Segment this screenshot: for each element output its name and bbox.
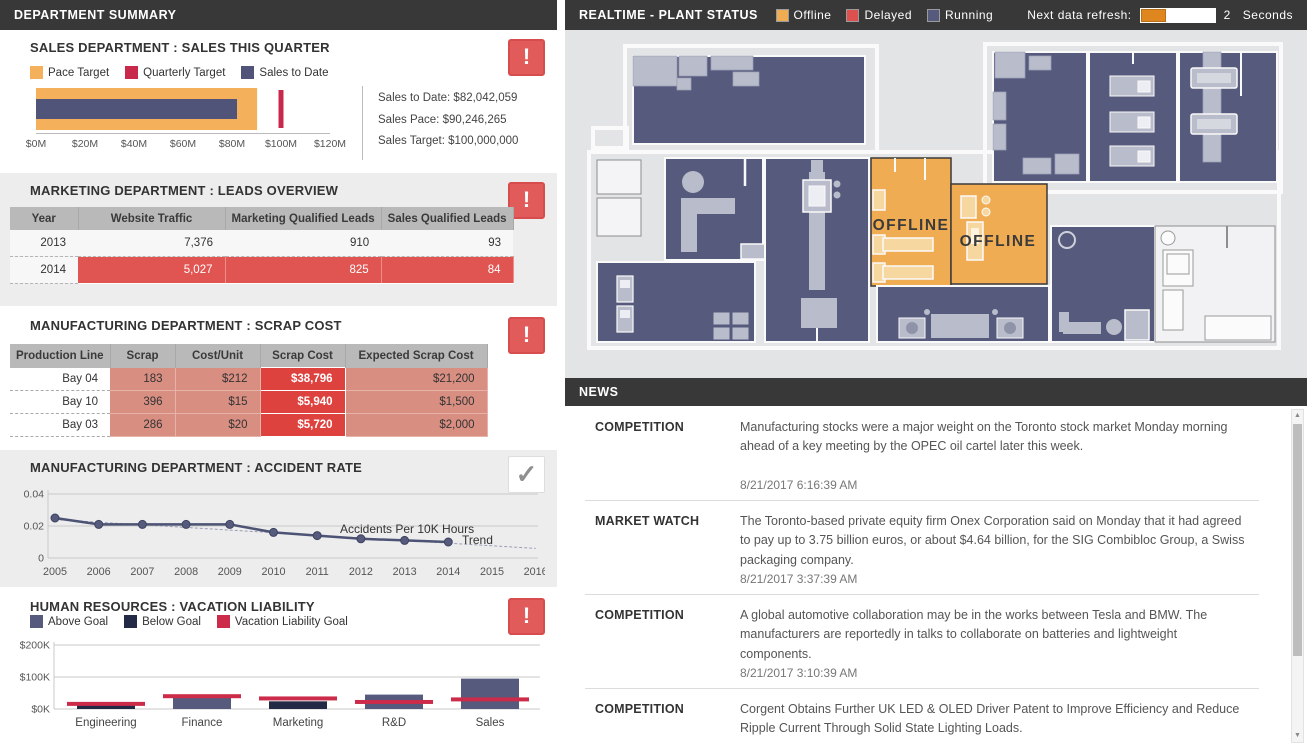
svg-text:Sales: Sales [476, 717, 505, 729]
sales-legend: Pace TargetQuarterly TargetSales to Date [30, 66, 328, 79]
sales-stats: Sales to Date: $82,042,059Sales Pace: $9… [378, 88, 518, 153]
legend-chip [30, 615, 43, 628]
refresh-progress-fill [1141, 9, 1166, 22]
column-header: Year [10, 207, 78, 230]
svg-text:2005: 2005 [43, 566, 67, 578]
news-text: The Toronto-based private equity firm On… [740, 512, 1245, 570]
scrap-cell: 396 [110, 391, 175, 414]
quarterly-target-marker [279, 90, 284, 128]
department-summary-header: DEPARTMENT SUMMARY [0, 0, 557, 30]
cost-unit-cell: $15 [175, 391, 260, 414]
department-summary-title: DEPARTMENT SUMMARY [14, 8, 176, 22]
news-text: Manufacturing stocks were a major weight… [740, 418, 1245, 457]
accident-section-title: MANUFACTURING DEPARTMENT : ACCIDENT RATE [30, 460, 362, 475]
cost-unit-cell: $212 [175, 368, 260, 391]
alert-icon[interactable]: ! [508, 182, 545, 219]
liability-bar [269, 701, 327, 709]
legend-item: Vacation Liability Goal [217, 615, 348, 628]
table-row: Bay 10396$15$5,940$1,500 [10, 391, 487, 414]
value-cell: 910 [225, 230, 381, 257]
news-item: COMPETITIONCorgent Obtains Further UK LE… [565, 688, 1307, 746]
value-cell: 93 [381, 230, 513, 257]
cost-unit-cell: $20 [175, 414, 260, 437]
scrap-cost-cell: $5,720 [260, 414, 345, 437]
svg-text:2010: 2010 [261, 566, 285, 578]
legend-label: Delayed [864, 0, 912, 30]
svg-text:$100M: $100M [265, 138, 297, 150]
scrap-cost-cell: $38,796 [260, 368, 345, 391]
legend-item: Pace Target [30, 66, 109, 79]
legend-chip [241, 66, 254, 79]
news-list: COMPETITIONManufacturing stocks were a m… [565, 406, 1307, 746]
table-row: Bay 04183$212$38,796$21,200 [10, 368, 487, 391]
legend-item: Sales to Date [241, 66, 328, 79]
scrollbar-up-arrow[interactable]: ▲ [1292, 410, 1303, 422]
svg-text:2011: 2011 [306, 566, 329, 578]
column-header: Sales Qualified Leads [381, 207, 513, 230]
svg-text:R&D: R&D [382, 717, 406, 729]
svg-text:$40M: $40M [121, 138, 147, 150]
expected-cost-cell: $21,200 [345, 368, 487, 391]
column-header: Marketing Qualified Leads [225, 207, 381, 230]
svg-text:$20M: $20M [72, 138, 98, 150]
realtime-panel: REALTIME - PLANT STATUS OfflineDelayedRu… [565, 0, 1307, 746]
sales-stat-line: Sales Pace: $90,246,265 [378, 110, 518, 132]
sales-to-date-bar [36, 99, 237, 119]
table-header-row: Production LineScrapCost/UnitScrap CostE… [10, 344, 487, 368]
divider [362, 86, 363, 160]
svg-text:Engineering: Engineering [75, 717, 136, 729]
svg-text:$60M: $60M [170, 138, 196, 150]
scrap-cost-table: Production LineScrapCost/UnitScrap CostE… [10, 344, 488, 437]
news-header: NEWS [565, 378, 1307, 406]
column-header: Cost/Unit [175, 344, 260, 368]
scrap-cell: 183 [110, 368, 175, 391]
alert-icon[interactable]: ! [508, 317, 545, 354]
legend-label: Below Goal [142, 616, 201, 628]
news-text: A global automotive collaboration may be… [740, 606, 1245, 664]
legend-chip [776, 9, 789, 22]
legend-label: Above Goal [48, 616, 108, 628]
goal-line [355, 700, 433, 704]
svg-text:$100K: $100K [20, 672, 50, 684]
svg-text:$0K: $0K [31, 704, 50, 716]
news-category: COMPETITION [595, 420, 735, 434]
svg-text:2007: 2007 [130, 566, 154, 578]
legend-item: Running [927, 0, 993, 30]
production-line-cell: Bay 04 [10, 368, 110, 391]
data-point [138, 520, 146, 528]
news-text: Corgent Obtains Further UK LED & OLED Dr… [740, 700, 1245, 739]
sales-section: SALES DEPARTMENT : SALES THIS QUARTER ! … [0, 30, 557, 172]
legend-item: Above Goal [30, 615, 108, 628]
room-running-5 [597, 262, 755, 342]
svg-text:$120M: $120M [314, 138, 346, 150]
legend-item: Delayed [846, 0, 912, 30]
plant-status-legend: OfflineDelayedRunning [776, 0, 994, 30]
data-point [182, 520, 190, 528]
scrollbar-thumb[interactable] [1293, 424, 1302, 656]
table-row: 20145,02782584 [10, 257, 513, 284]
svg-text:$200K: $200K [20, 640, 50, 652]
room-running-machine [765, 158, 869, 342]
svg-text:Accidents Per 10K Hours: Accidents Per 10K Hours [340, 522, 474, 536]
news-item: MARKET WATCHThe Toronto-based private eq… [565, 500, 1307, 594]
goal-line [67, 702, 145, 706]
scrap-section-title: MANUFACTURING DEPARTMENT : SCRAP COST [30, 318, 342, 333]
data-point [313, 532, 321, 540]
sales-stat-line: Sales to Date: $82,042,059 [378, 88, 518, 110]
data-point [226, 520, 234, 528]
news-scrollbar[interactable]: ▲ ▼ [1291, 409, 1304, 743]
data-point [95, 520, 103, 528]
column-header: Expected Scrap Cost [345, 344, 487, 368]
room-running-7 [1051, 226, 1155, 342]
news-timestamp: 8/21/2017 3:10:39 AM [740, 666, 857, 680]
liability-bar [173, 698, 231, 709]
news-category: COMPETITION [595, 608, 735, 622]
svg-text:2006: 2006 [87, 566, 111, 578]
floorplan-svg: OFFLINE OFFLINE [565, 30, 1307, 378]
svg-text:$0M: $0M [26, 138, 46, 150]
room-running-6 [877, 286, 1049, 342]
scrap-section: MANUFACTURING DEPARTMENT : SCRAP COST ! … [0, 308, 557, 448]
corridor-units [597, 160, 641, 236]
legend-item: Offline [776, 0, 832, 30]
legend-item: Below Goal [124, 615, 201, 628]
room-running-4 [1179, 52, 1277, 182]
room-idle-white [1155, 226, 1275, 342]
news-item: COMPETITIONA global automotive collabora… [565, 594, 1307, 688]
column-header: Website Traffic [78, 207, 225, 230]
news-timestamp: 8/21/2017 6:16:39 AM [740, 478, 857, 492]
column-header: Scrap [110, 344, 175, 368]
table-header-row: YearWebsite TrafficMarketing Qualified L… [10, 207, 513, 230]
expected-cost-cell: $2,000 [345, 414, 487, 437]
vacation-liability-chart: $0K$100K$200KEngineeringFinanceMarketing… [10, 635, 545, 739]
data-point [401, 536, 409, 544]
production-line-cell: Bay 03 [10, 414, 110, 437]
sales-stat-line: Sales Target: $100,000,000 [378, 131, 518, 153]
room-offline-2: OFFLINE [951, 184, 1047, 284]
refresh-seconds-unit: Seconds [1243, 0, 1293, 30]
svg-text:0.04: 0.04 [24, 489, 45, 501]
plant-status-title: REALTIME - PLANT STATUS [579, 0, 758, 30]
value-cell: 5,027 [78, 257, 225, 284]
table-row: 20137,37691093 [10, 230, 513, 257]
legend-label: Running [945, 0, 993, 30]
hr-legend: Above GoalBelow GoalVacation Liability G… [30, 615, 348, 628]
column-header: Production Line [10, 344, 110, 368]
production-line-cell: Bay 10 [10, 391, 110, 414]
svg-text:2016: 2016 [524, 566, 545, 578]
year-cell: 2013 [10, 230, 78, 257]
svg-text:2015: 2015 [480, 566, 504, 578]
room-running-1 [633, 56, 865, 144]
news-category: MARKET WATCH [595, 514, 735, 528]
svg-text:Marketing: Marketing [273, 717, 324, 729]
goal-line [259, 696, 337, 700]
data-point [51, 514, 59, 522]
year-cell: 2014 [10, 257, 78, 284]
alert-icon[interactable]: ! [508, 598, 545, 635]
svg-text:Finance: Finance [182, 717, 223, 729]
scrap-cost-cell: $5,940 [260, 391, 345, 414]
news-item: COMPETITIONManufacturing stocks were a m… [565, 406, 1307, 500]
svg-text:2009: 2009 [218, 566, 242, 578]
department-summary-panel: DEPARTMENT SUMMARY SALES DEPARTMENT : SA… [0, 0, 557, 746]
legend-label: Vacation Liability Goal [235, 616, 348, 628]
legend-label: Quarterly Target [143, 67, 225, 79]
plant-status-header: REALTIME - PLANT STATUS OfflineDelayedRu… [565, 0, 1307, 30]
hr-section-title: HUMAN RESOURCES : VACATION LIABILITY [30, 599, 315, 614]
news-title: NEWS [579, 385, 619, 399]
svg-text:2014: 2014 [436, 566, 460, 578]
svg-text:2008: 2008 [174, 566, 198, 578]
svg-text:Trend: Trend [462, 533, 493, 547]
legend-label: Offline [794, 0, 832, 30]
hr-section: HUMAN RESOURCES : VACATION LIABILITY ! A… [0, 589, 557, 746]
marketing-section: MARKETING DEPARTMENT : LEADS OVERVIEW ! … [0, 173, 557, 306]
plant-floorplan: OFFLINE OFFLINE [565, 30, 1307, 378]
marketing-section-title: MARKETING DEPARTMENT : LEADS OVERVIEW [30, 183, 338, 198]
legend-chip [30, 66, 43, 79]
legend-chip [846, 9, 859, 22]
scrap-cell: 286 [110, 414, 175, 437]
legend-item: Quarterly Target [125, 66, 225, 79]
value-cell: 7,376 [78, 230, 225, 257]
room-offline-1: OFFLINE [871, 158, 951, 286]
svg-text:$80M: $80M [219, 138, 245, 150]
legend-chip [927, 9, 940, 22]
legend-chip [217, 615, 230, 628]
svg-text:2013: 2013 [393, 566, 417, 578]
svg-text:2012: 2012 [349, 566, 373, 578]
data-point [270, 528, 278, 536]
leads-table: YearWebsite TrafficMarketing Qualified L… [10, 207, 514, 284]
refresh-progress-bar [1140, 8, 1216, 23]
goal-line [163, 694, 241, 698]
value-cell: 825 [225, 257, 381, 284]
sales-section-title: SALES DEPARTMENT : SALES THIS QUARTER [30, 40, 330, 55]
legend-label: Pace Target [48, 67, 109, 79]
column-header: Scrap Cost [260, 344, 345, 368]
accident-section: MANUFACTURING DEPARTMENT : ACCIDENT RATE… [0, 450, 557, 587]
liability-bar [461, 679, 519, 709]
offline-label-1: OFFLINE [873, 217, 950, 234]
svg-text:0.02: 0.02 [24, 521, 45, 533]
room-running-office [665, 158, 765, 260]
alert-icon[interactable]: ! [508, 39, 545, 76]
expected-cost-cell: $1,500 [345, 391, 487, 414]
legend-label: Sales to Date [259, 67, 328, 79]
value-cell: 84 [381, 257, 513, 284]
offline-label-2: OFFLINE [960, 233, 1037, 250]
scrollbar-down-arrow[interactable]: ▼ [1292, 730, 1303, 742]
accident-rate-chart: 00.020.04Accidents Per 10K HoursTrend200… [10, 476, 545, 582]
goal-line [451, 697, 529, 701]
data-point [357, 535, 365, 543]
svg-text:0: 0 [38, 553, 44, 565]
refresh-label: Next data refresh: [1027, 0, 1131, 30]
news-timestamp: 8/21/2017 3:37:39 AM [740, 572, 857, 586]
sales-bullet-chart: $0M$20M$40M$60M$80M$100M$120M [22, 84, 367, 164]
room-running-3 [1089, 52, 1177, 182]
room-running-2 [993, 52, 1087, 182]
table-row: Bay 03286$20$5,720$2,000 [10, 414, 487, 437]
data-point [444, 538, 452, 546]
legend-chip [124, 615, 137, 628]
refresh-seconds-value: 2 [1224, 0, 1231, 30]
news-category: COMPETITION [595, 702, 735, 716]
legend-chip [125, 66, 138, 79]
